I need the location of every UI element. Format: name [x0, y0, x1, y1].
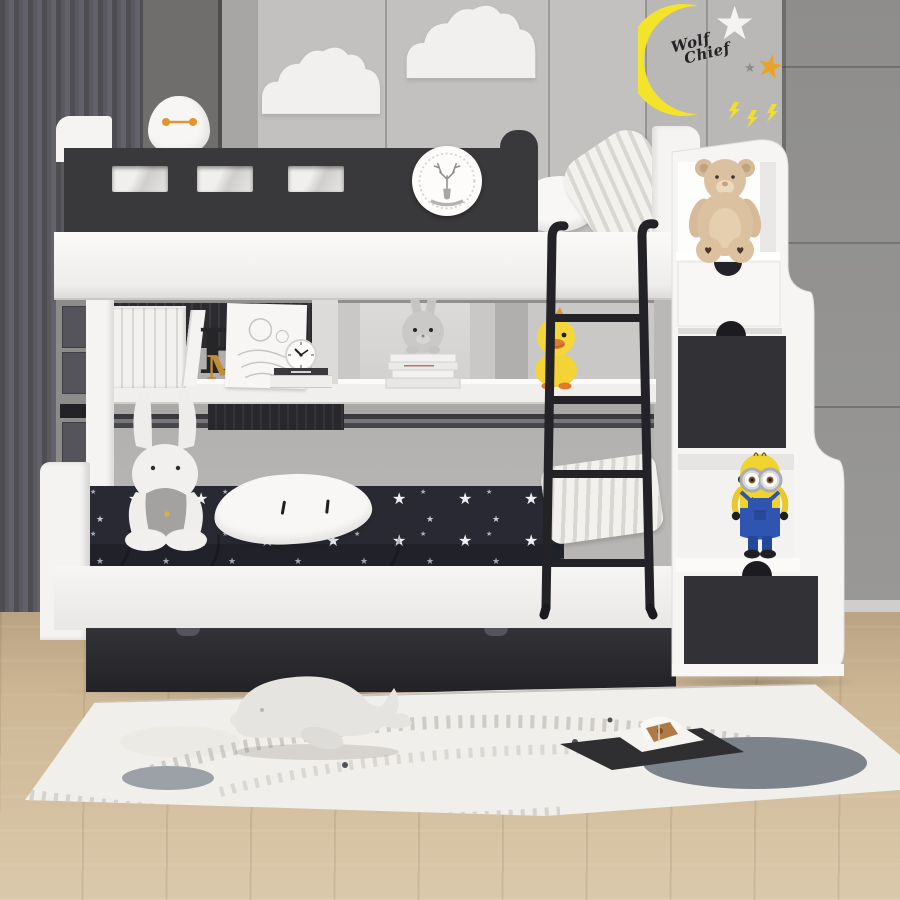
window-pane [62, 352, 88, 394]
pillow-stitch [325, 499, 329, 513]
shelf-books-row [112, 306, 186, 388]
pillow-stitch [281, 501, 286, 515]
cloud-decal [406, 2, 536, 78]
baymax-plush [148, 96, 210, 154]
open-picture-book [552, 700, 752, 775]
star-decal-white: ★ [714, 0, 755, 46]
minion-figure [724, 450, 794, 564]
book-stack-label [291, 371, 311, 373]
book-stack-black [274, 368, 328, 375]
wall-clock [284, 338, 318, 372]
baymax-face [148, 96, 210, 136]
teddy-bear [682, 154, 768, 264]
window-pane [62, 306, 88, 348]
book-stack-white [270, 375, 332, 388]
deer-plaque [412, 146, 482, 216]
bedroom-scene: Wolf Chief ★ ★ ★ E M [0, 0, 900, 900]
guardrail-window [112, 166, 168, 192]
whale-plush [222, 666, 417, 762]
trundle-notch [484, 628, 508, 636]
guardrail-window [288, 166, 344, 192]
trundle-notch [176, 628, 200, 636]
ladder [532, 218, 666, 620]
shelf-bunny-plush [384, 290, 462, 390]
window-pane [62, 422, 88, 464]
cloud-decal [262, 44, 380, 114]
alcove-dark-slat-lower [208, 400, 344, 430]
rabbit-plush [112, 386, 222, 552]
guardrail-window [197, 166, 253, 192]
wardrobe-seam [782, 66, 900, 68]
deer-art [412, 146, 482, 216]
window-bar [60, 404, 88, 418]
window-frame [56, 296, 90, 482]
